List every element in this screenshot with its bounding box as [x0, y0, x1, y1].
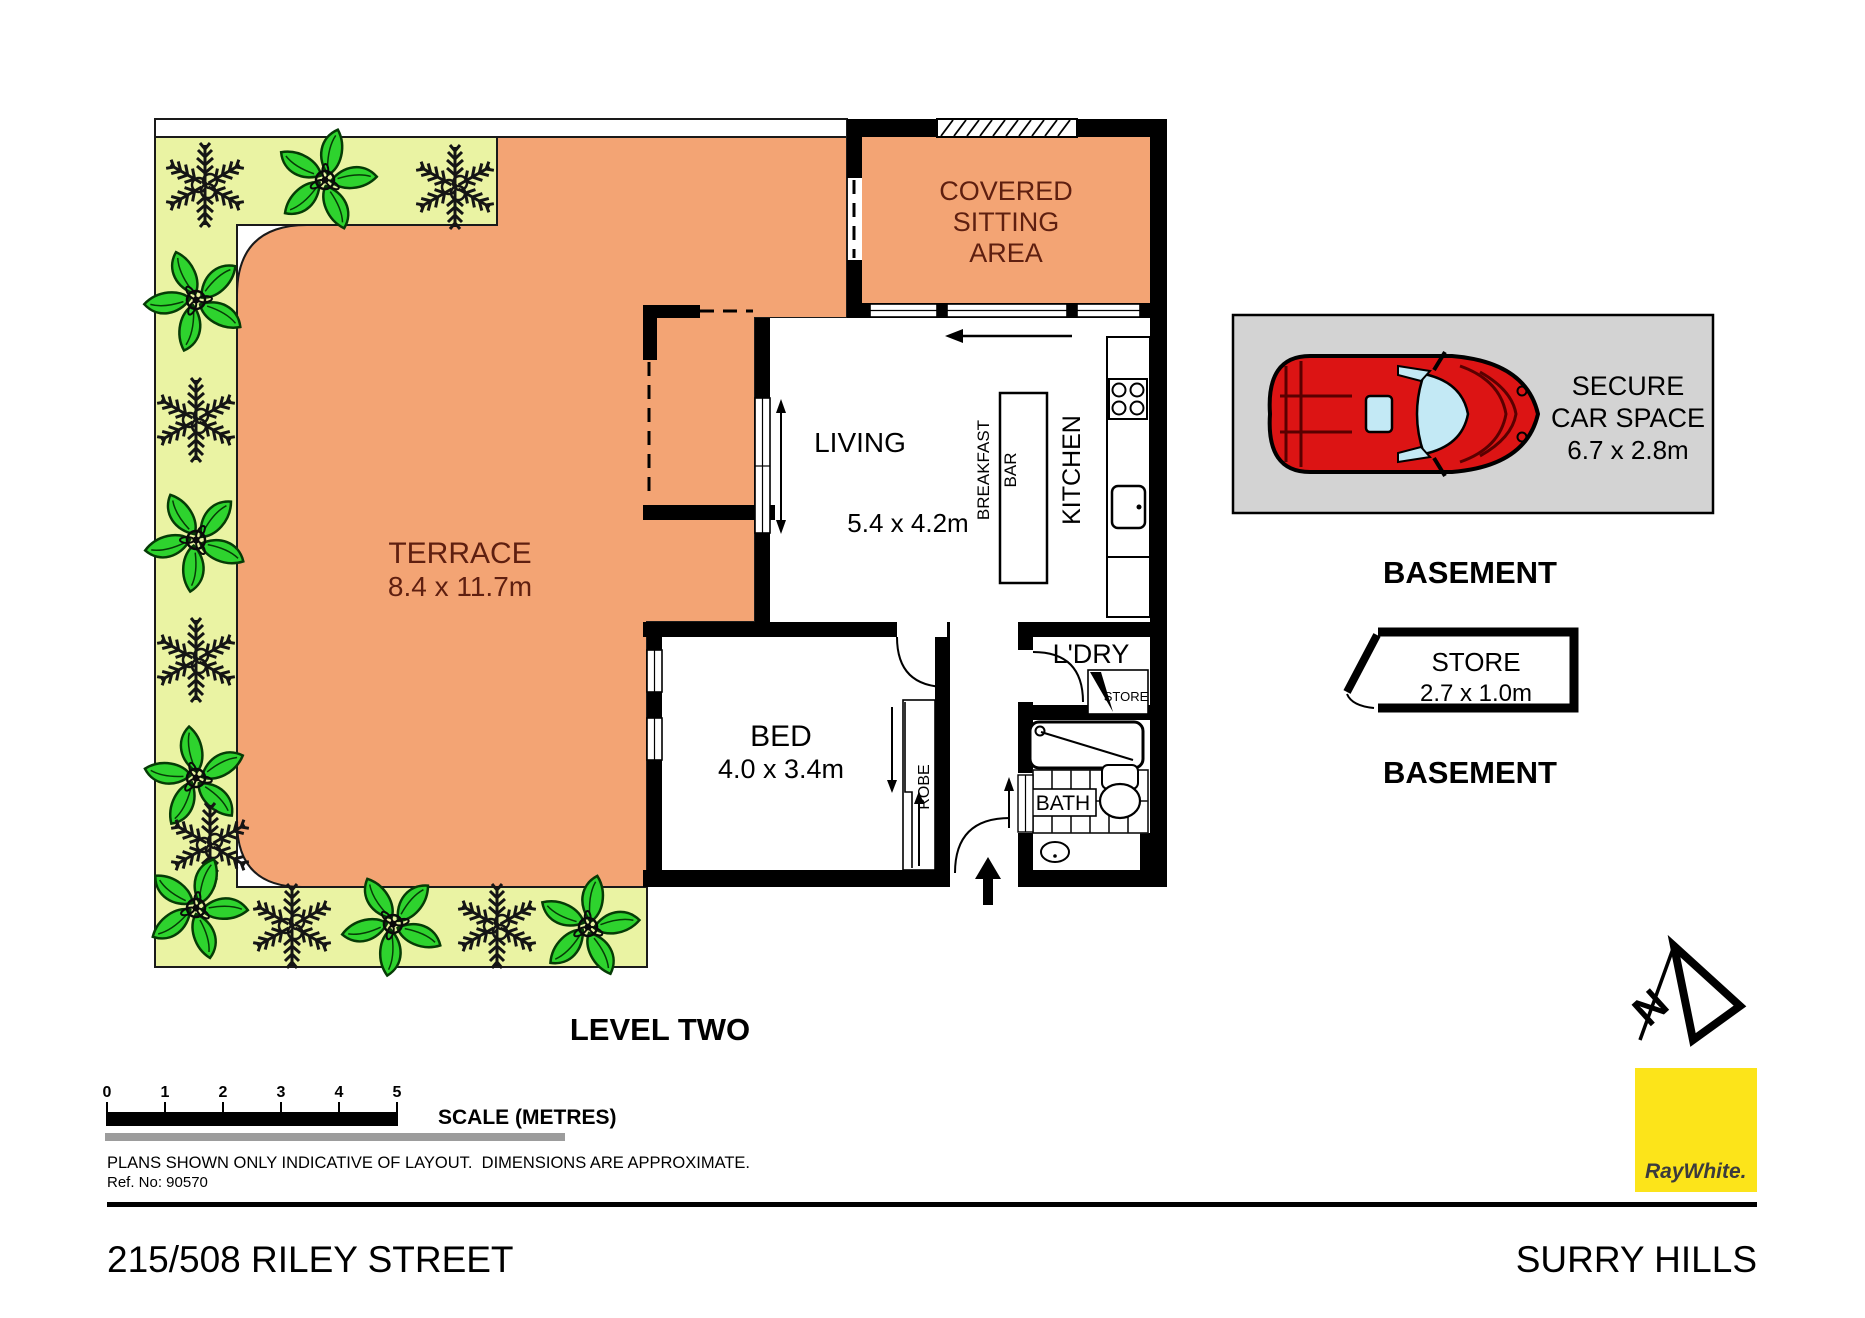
robe-label: ROBE — [916, 764, 933, 809]
scale-tick-label: 3 — [277, 1084, 286, 1101]
car-space-dims: 6.7 x 2.8m — [1567, 435, 1688, 465]
raywhite-logo-text: RayWhite. — [1645, 1160, 1747, 1183]
scale-gray-rule — [105, 1133, 565, 1141]
car-space-label-1: SECURE — [1572, 371, 1685, 401]
breakfast-bar-label-2: BAR — [1001, 453, 1020, 488]
floorplan-canvas: TERRACE 8.4 x 11.7m COVERED SITTING AREA… — [0, 0, 1865, 1318]
sink-icon — [1112, 486, 1145, 528]
store-nook-label: STORE — [1104, 689, 1149, 704]
car-space: SECURE CAR SPACE 6.7 x 2.8m — [1233, 315, 1713, 513]
scale-tick-label: 0 — [103, 1084, 112, 1101]
scale-caption: SCALE (METRES) — [438, 1106, 617, 1129]
store-box: STORE 2.7 x 1.0m — [1347, 632, 1574, 708]
bathtub-icon — [1030, 722, 1143, 768]
scale-tick-label: 2 — [219, 1084, 228, 1101]
scale-tick-label: 1 — [161, 1084, 170, 1101]
kitchen-label: KITCHEN — [1058, 415, 1086, 525]
kitchen — [1107, 337, 1150, 617]
living-floor — [770, 318, 1150, 622]
car-icon — [1270, 352, 1538, 476]
ref-number: Ref. No: 90570 — [107, 1174, 208, 1191]
covered-sitting-label-1: COVERED — [939, 176, 1073, 206]
laundry-label: L'DRY — [1053, 639, 1130, 669]
scale-tick-label: 4 — [335, 1084, 344, 1101]
address-text: 215/508 RILEY STREET — [107, 1239, 514, 1280]
bath-label: BATH — [1036, 792, 1090, 815]
living-dims: 5.4 x 4.2m — [847, 508, 968, 538]
terrace-label: TERRACE — [388, 537, 531, 570]
north-n-glyph: N — [1623, 980, 1677, 1035]
store-box-label: STORE — [1431, 647, 1520, 677]
car-space-label-2: CAR SPACE — [1551, 403, 1705, 433]
level-label: LEVEL TWO — [570, 1012, 750, 1047]
basement-label-2: BASEMENT — [1383, 755, 1557, 790]
terrace-dims: 8.4 x 11.7m — [388, 571, 532, 602]
toilet-icon — [1100, 765, 1140, 818]
footer-rule — [107, 1202, 1757, 1207]
basement-label-1: BASEMENT — [1383, 555, 1557, 590]
covered-sitting-label-3: AREA — [969, 238, 1043, 268]
scale-bar: 0 1 2 3 4 5 SCALE (METRES) — [103, 1084, 617, 1141]
floorplan-page: TERRACE 8.4 x 11.7m COVERED SITTING AREA… — [0, 0, 1865, 1318]
breakfast-bar-label-1: BREAKFAST — [974, 420, 993, 520]
raywhite-logo: RayWhite. — [1635, 1068, 1757, 1192]
stove-icon — [1109, 379, 1147, 419]
bed-dims: 4.0 x 3.4m — [718, 754, 844, 784]
store-box-dims: 2.7 x 1.0m — [1420, 680, 1532, 707]
bed-label: BED — [750, 720, 812, 753]
suburb-text: SURRY HILLS — [1516, 1239, 1757, 1280]
disclaimer-text: PLANS SHOWN ONLY INDICATIVE OF LAYOUT. D… — [107, 1154, 750, 1172]
north-arrow-icon: N — [1623, 946, 1740, 1040]
covered-sitting-label-2: SITTING — [953, 207, 1060, 237]
hatched-window — [937, 119, 1077, 137]
living-label: LIVING — [814, 427, 906, 458]
scale-tick-label: 5 — [393, 1084, 402, 1101]
basin-icon — [1041, 842, 1069, 862]
terrace-top-border — [155, 119, 847, 137]
